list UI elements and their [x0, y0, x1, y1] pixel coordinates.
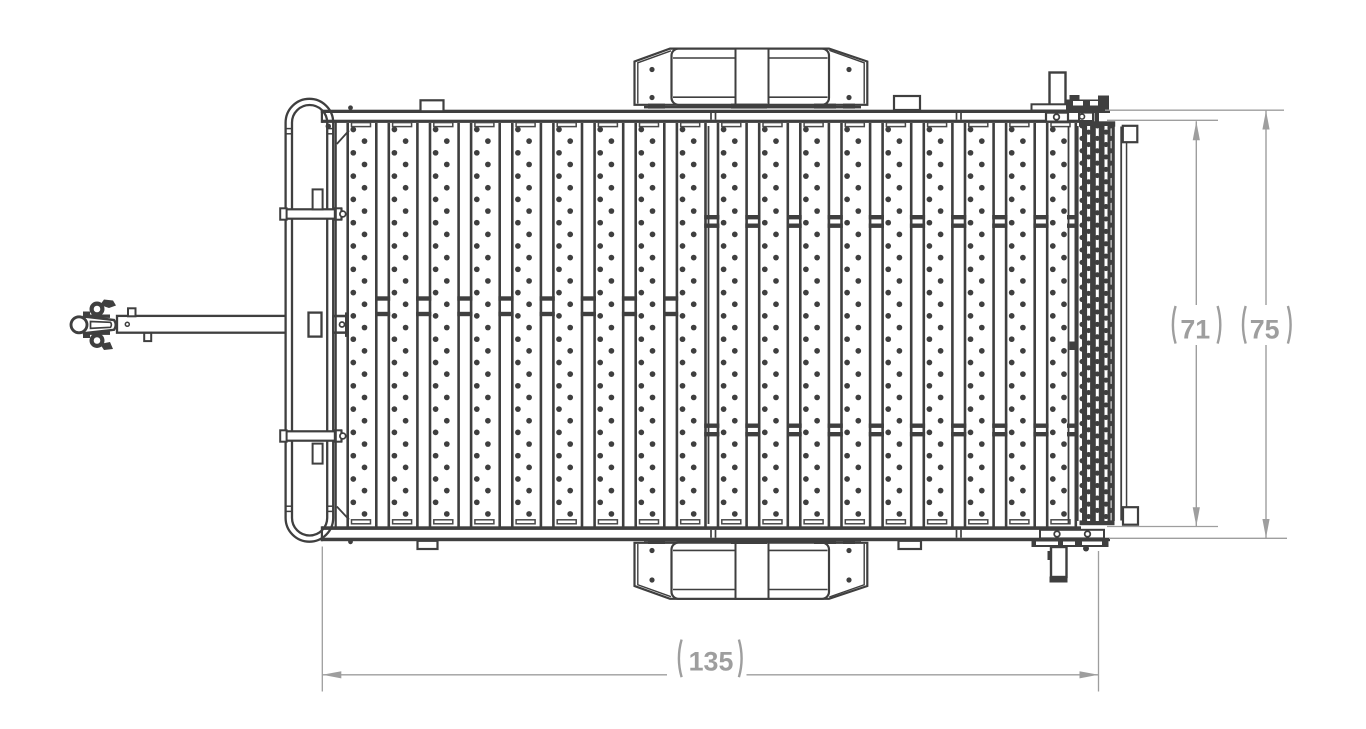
svg-text:135: 135 — [689, 646, 734, 676]
svg-text:75: 75 — [1250, 315, 1280, 345]
svg-text:71: 71 — [1180, 315, 1210, 345]
